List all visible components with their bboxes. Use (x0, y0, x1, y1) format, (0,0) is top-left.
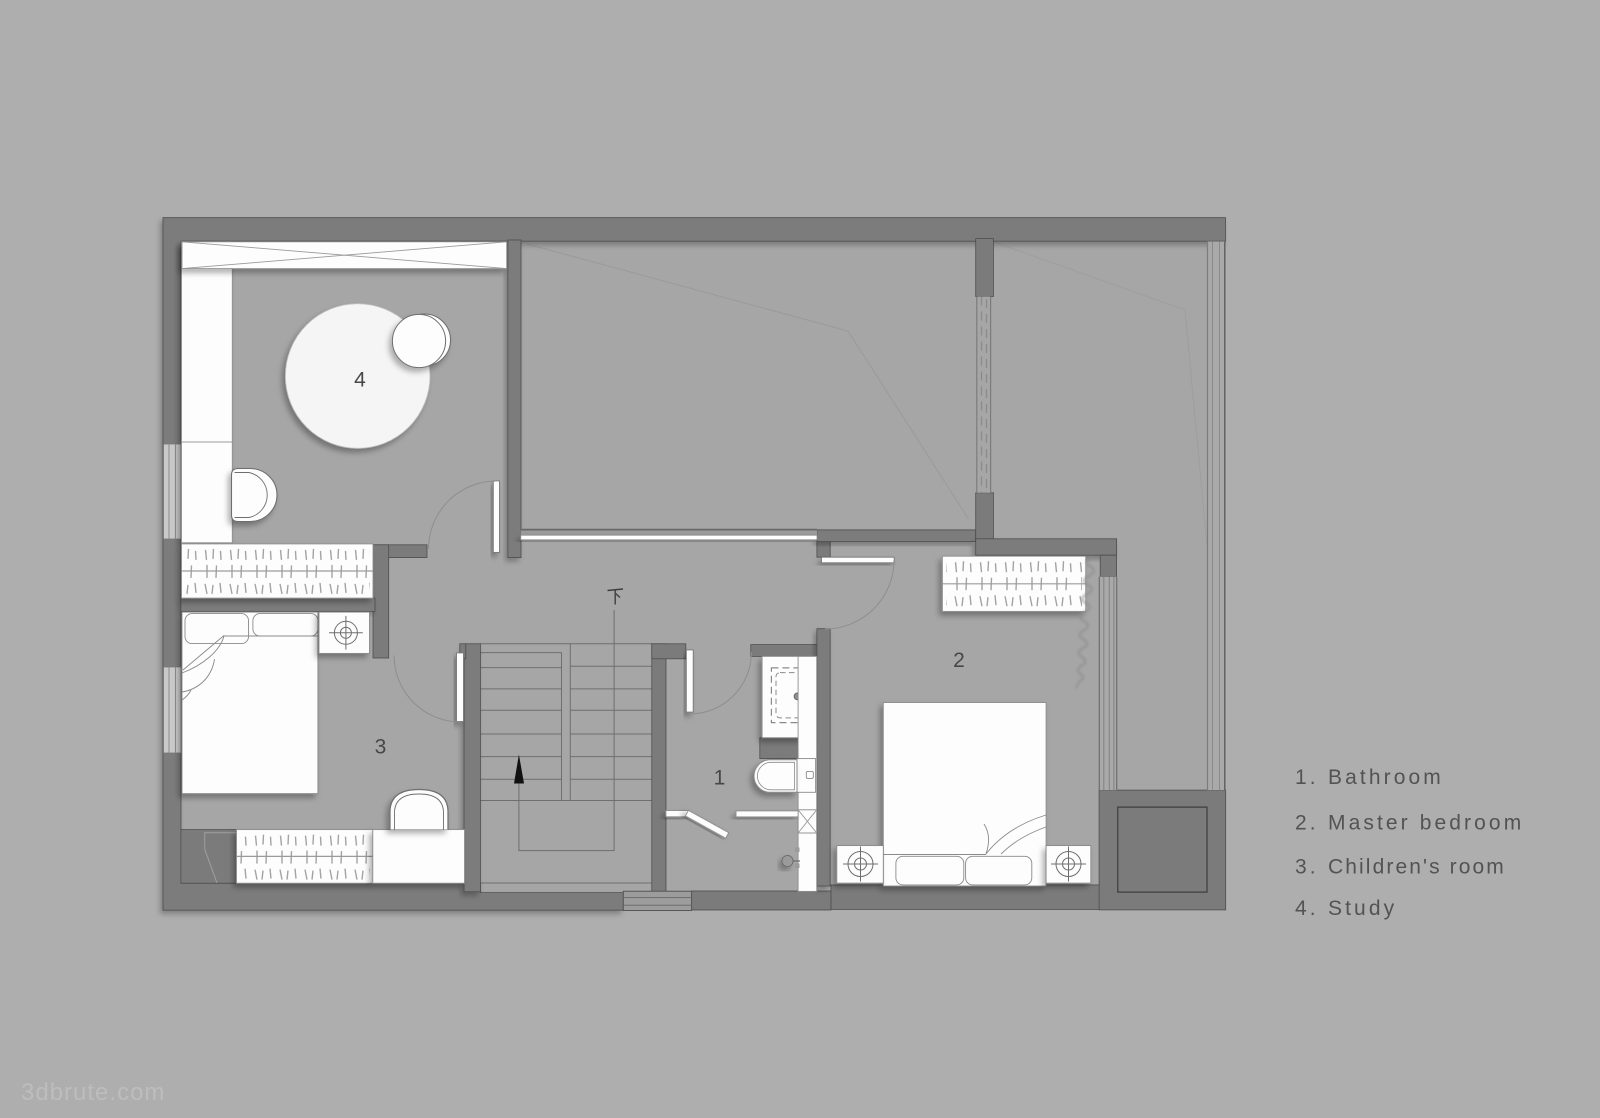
svg-text:Study: Study (1328, 897, 1397, 920)
svg-text:1: 1 (714, 767, 726, 790)
svg-text:2.: 2. (1295, 812, 1319, 835)
svg-text:3.: 3. (1295, 856, 1319, 879)
svg-text:4.: 4. (1295, 897, 1319, 920)
svg-text:2: 2 (953, 649, 965, 672)
svg-text:3dbrute.com: 3dbrute.com (21, 1079, 165, 1106)
svg-text:Bathroom: Bathroom (1328, 766, 1444, 789)
svg-text:Children's room: Children's room (1328, 856, 1506, 879)
svg-text:4: 4 (354, 369, 366, 392)
svg-text:3: 3 (375, 736, 387, 759)
svg-text:1.: 1. (1295, 766, 1319, 789)
svg-text:Master bedroom: Master bedroom (1328, 812, 1524, 835)
